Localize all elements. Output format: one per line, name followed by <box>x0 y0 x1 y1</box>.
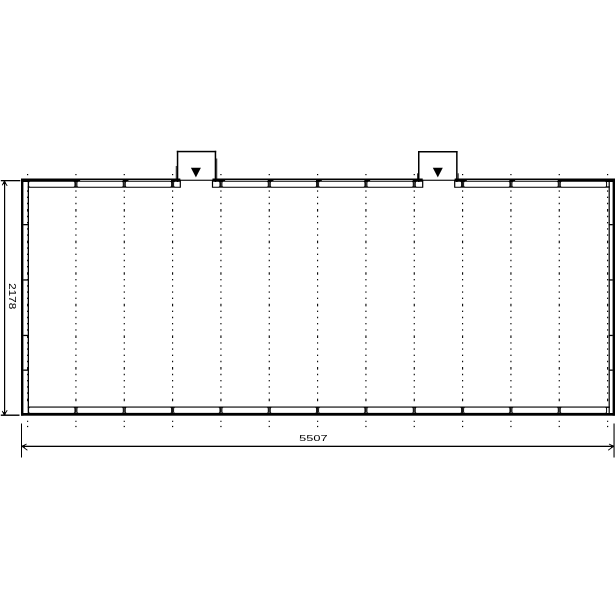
svg-text:5507: 5507 <box>299 433 328 443</box>
svg-text:2178: 2178 <box>6 283 17 310</box>
